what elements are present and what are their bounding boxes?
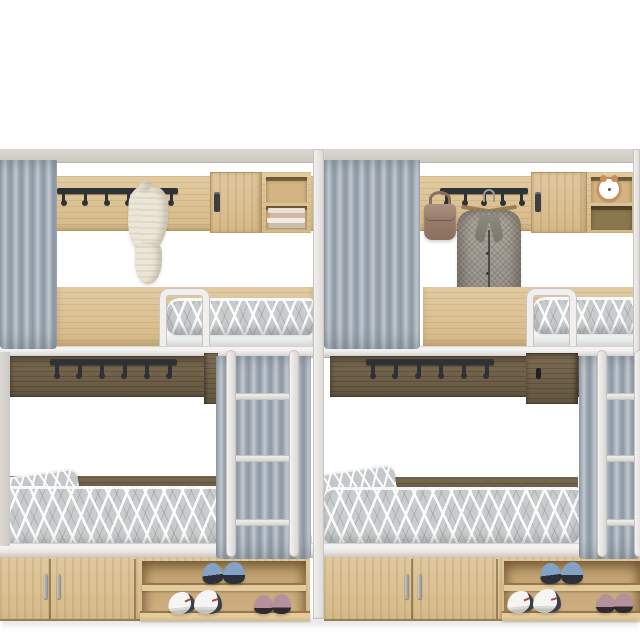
cabinet-door-gap [496,559,498,619]
base-door-handle [405,574,409,599]
ladder-rail [597,350,607,557]
base-door-handle [418,574,422,599]
white-sneaker [533,589,561,613]
side-locker [526,353,578,404]
coat-hook [462,363,466,376]
coat-hook [417,363,421,376]
ladder-rail [634,350,640,557]
coat-hook [485,363,489,376]
mauve-flat [614,593,633,613]
coat-hook [520,192,523,203]
handbag-flap [424,204,456,221]
blue-sneaker [561,562,583,584]
alarm-clock [597,177,621,201]
coat-hook [501,192,504,203]
coat-hook [371,363,375,376]
upper-guardrail [527,289,576,349]
locker-handle [536,368,541,379]
render-canvas [0,0,640,640]
coat-hook [439,363,443,376]
center-frame-post [313,149,324,619]
coat-hook [464,192,467,203]
cabinet-door-handle [535,192,541,212]
blazer-button [486,252,489,255]
blazer-placket [488,230,490,294]
hanger-hook [483,189,495,202]
clock-hands [608,188,611,191]
ladder-rung [603,393,637,400]
under-bunk-hook-rail [366,359,494,365]
floor-shadow [2,619,638,630]
blazer-button [486,272,489,275]
lower-duvet [324,487,580,544]
shelf-compartment-bottom [591,206,632,230]
coat-hook [394,363,398,376]
mauve-flat [596,594,615,613]
ladder-rung [603,455,637,462]
upper-bunk-curtain [324,160,420,349]
shoe-rack-shelf [504,583,640,591]
cabinet-door-gap [411,559,413,619]
ladder-rung [603,519,637,526]
